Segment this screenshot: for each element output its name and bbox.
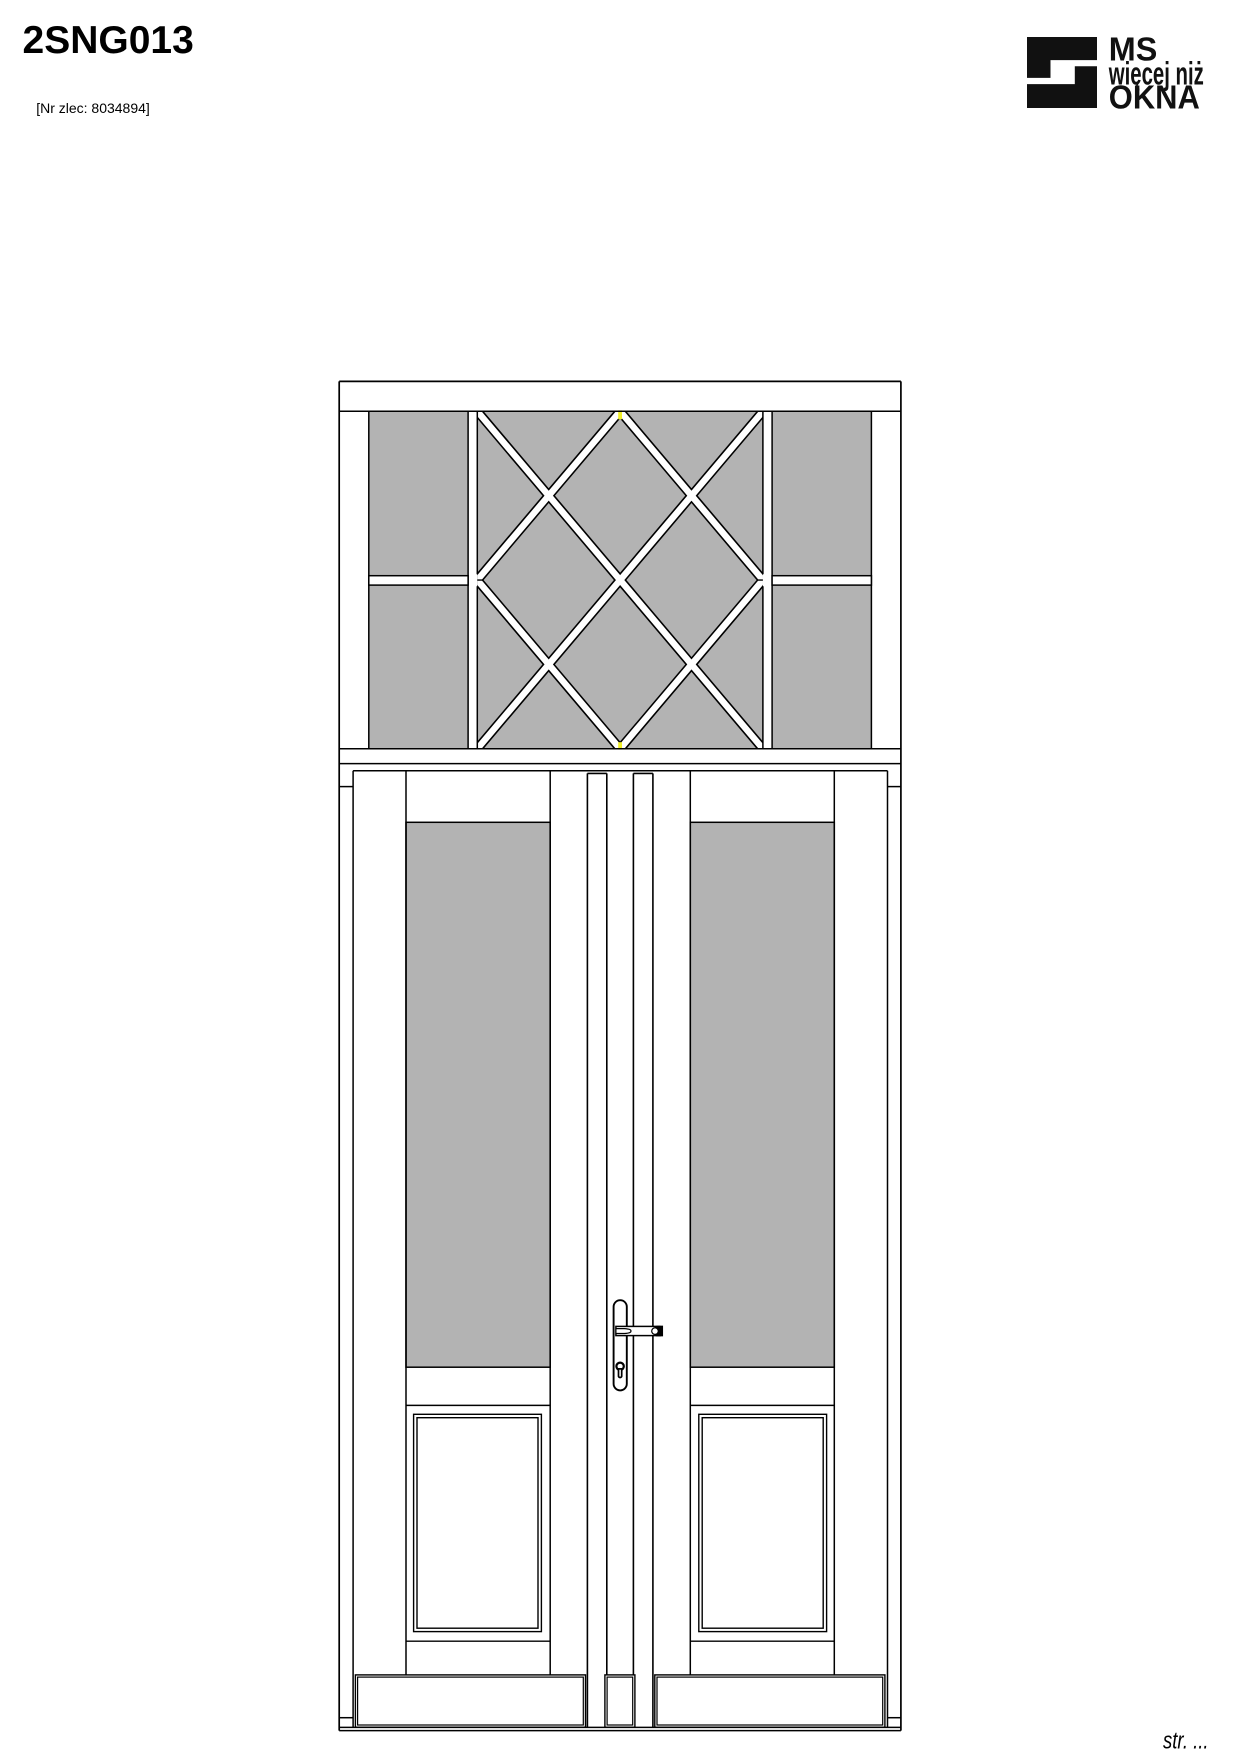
svg-text:str. ...: str. ... [1163,1728,1209,1755]
svg-text:[Nr zlec: 8034894]: [Nr zlec: 8034894] [36,100,150,116]
svg-text:OKNA: OKNA [1109,78,1200,115]
svg-text:2SNG013: 2SNG013 [23,19,194,62]
